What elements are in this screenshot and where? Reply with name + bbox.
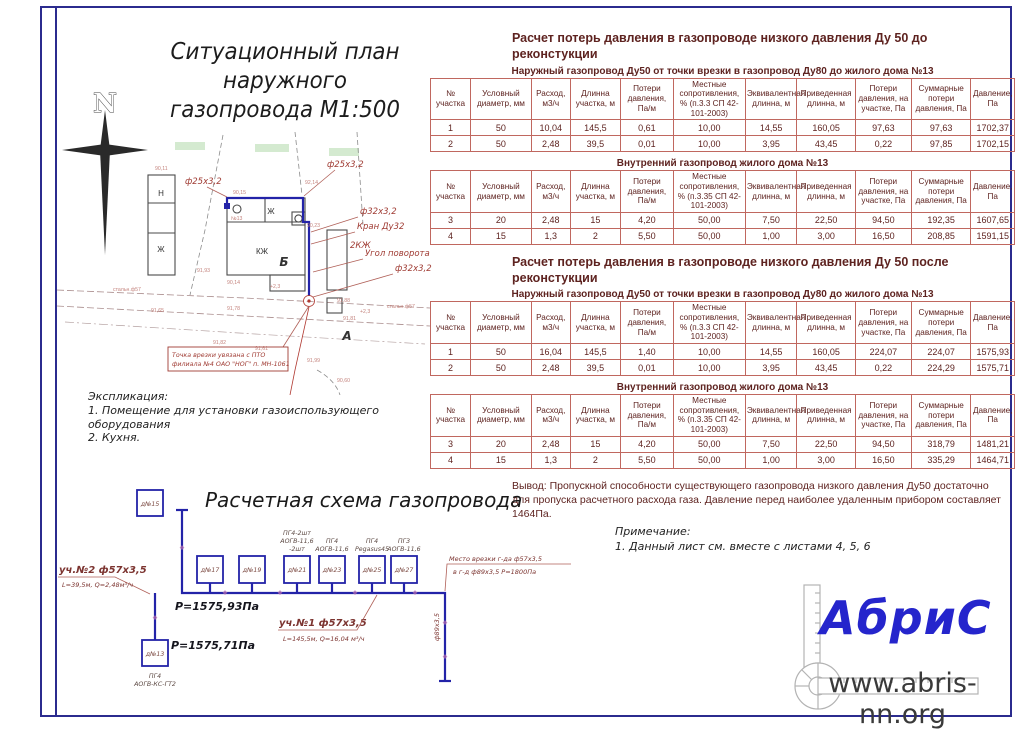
- house-box-21: д№21 ПГ4-2шт АОГВ-11,6 -2шт: [279, 530, 313, 593]
- tie-in-label: Место врезки г-да ф57х3,5 в г-д ф89х3,5 …: [445, 555, 571, 591]
- cell: 50,00: [673, 452, 745, 468]
- cell: 94,50: [855, 212, 911, 228]
- cell: 10,00: [673, 136, 745, 152]
- svg-text:-2шт: -2шт: [289, 546, 305, 553]
- elevation-mark: 91,82: [213, 340, 226, 346]
- cell: 2,48: [531, 436, 570, 452]
- cell: 1,40: [621, 344, 674, 360]
- cell: 1: [431, 344, 471, 360]
- col-header: Потери давления, на участке, Па: [855, 302, 911, 344]
- segment2-label: уч.№2 ф57х3,5 L=39,5м, Q=2,48м³/ч: [58, 564, 150, 594]
- table3-subtitle: Наружный газопровод Ду50 от точки врезки…: [430, 289, 1015, 300]
- col-header: Приведенная длинна, м: [797, 302, 855, 344]
- col-header: Расход, м3/ч: [531, 302, 570, 344]
- notes: Примечание: 1. Данный лист см. вместе с …: [615, 525, 871, 555]
- cell: 224,07: [855, 344, 911, 360]
- col-header: Давление, Па: [971, 302, 1015, 344]
- col-header: Условный диаметр, мм: [471, 171, 532, 213]
- svg-text:N: N: [93, 89, 117, 119]
- calc-block2-title: Расчет потерь давления в газопроводе низ…: [512, 254, 1005, 287]
- cell: 0,01: [621, 360, 674, 376]
- cell: 10,04: [531, 120, 570, 136]
- svg-text:ПГ4-2шт: ПГ4-2шт: [283, 530, 311, 537]
- elevation-mark: 91,99: [307, 358, 320, 364]
- explication-item: 2. Кухня.: [88, 431, 418, 445]
- cell: 4,20: [621, 212, 674, 228]
- cell: 50,00: [673, 436, 745, 452]
- svg-text:Точка врезки увязана с ПТО: Точка врезки увязана с ПТО: [172, 352, 265, 359]
- cell: 1,3: [531, 228, 570, 244]
- svg-text:ПГ4: ПГ4: [149, 673, 161, 680]
- cell: 145,5: [570, 344, 620, 360]
- col-header: Эквивалентная длинна, м: [745, 78, 797, 120]
- house-box-27: д№27 ПГ3 АОГВ-11,6: [386, 538, 420, 593]
- elevation-mark: 90,11: [155, 166, 168, 172]
- svg-text:д№25: д№25: [362, 567, 382, 574]
- calc-table: № участкаУсловный диаметр, ммРасход, м3/…: [430, 394, 1015, 469]
- cell: 2: [570, 228, 620, 244]
- cell: 50,00: [673, 212, 745, 228]
- svg-text:Ж: Ж: [157, 245, 165, 254]
- col-header: Условный диаметр, мм: [471, 395, 532, 437]
- notes-item: 1. Данный лист см. вместе с листами 4, 5…: [615, 540, 871, 555]
- cell: 318,79: [911, 436, 971, 452]
- riser-label: ф89х3,5: [433, 613, 441, 641]
- cell: 4: [431, 452, 471, 468]
- house-box-13: д№13 ПГ4 АОГВ-КС-ГТ2: [133, 640, 176, 688]
- calc-table: № участкаУсловный диаметр, ммРасход, м3/…: [430, 301, 1015, 376]
- table2-subtitle: Внутренний газопровод жилого дома №13: [430, 158, 1015, 169]
- col-header: Длинна участка, м: [570, 78, 620, 120]
- cell: 208,85: [911, 228, 971, 244]
- table-indoor-after: № участкаУсловный диаметр, ммРасход, м3/…: [430, 394, 1015, 469]
- scheme-title: Расчетная схема газопровода: [205, 488, 522, 512]
- svg-text:филиала №4 ОАО "НОГ" п. МН-106: филиала №4 ОАО "НОГ" п. МН-1061: [172, 361, 290, 368]
- elevation-mark: 90,15: [233, 190, 246, 196]
- svg-text:Ж: Ж: [267, 207, 275, 216]
- table-row: 15010,04145,50,6110,0014,55160,0597,6397…: [431, 120, 1015, 136]
- elevation-mark: 91,78: [227, 306, 240, 312]
- svg-text:Н: Н: [158, 189, 164, 198]
- col-header: Эквивалентная длинна, м: [745, 302, 797, 344]
- notes-title: Примечание:: [615, 525, 871, 540]
- road-axis-line: [65, 322, 425, 344]
- cell: 16,50: [855, 228, 911, 244]
- cell: 97,63: [855, 120, 911, 136]
- col-header: Суммарные потери давления, Па: [911, 395, 971, 437]
- svg-text:Pegasus45: Pegasus45: [355, 546, 389, 553]
- col-header: Потери давления, Па/м: [621, 171, 674, 213]
- table-row: 15016,04145,51,4010,0014,55160,05224,072…: [431, 344, 1015, 360]
- svg-text:АОГВ-11,6: АОГВ-11,6: [279, 538, 313, 545]
- calc-table: № участкаУсловный диаметр, ммРасход, м3/…: [430, 170, 1015, 245]
- elevation-mark: 91,93: [197, 268, 210, 274]
- faded-mark: [255, 144, 289, 152]
- svg-text:№13: №13: [231, 216, 242, 222]
- cell: 50,00: [673, 228, 745, 244]
- cell: 2,48: [531, 136, 570, 152]
- segment1-label: уч.№1 ф57х3,5 L=145,5м, Q=16,04 м³/ч: [278, 595, 377, 643]
- col-header: Суммарные потери давления, Па: [911, 78, 971, 120]
- svg-text:в г-д ф89х3,5 Р=1800Па: в г-д ф89х3,5 Р=1800Па: [453, 568, 536, 576]
- svg-text:L=145,5м, Q=16,04 м³/ч: L=145,5м, Q=16,04 м³/ч: [283, 635, 365, 643]
- building-left: Н Ж: [148, 175, 175, 275]
- cell: 20: [471, 212, 532, 228]
- col-header: Расход, м3/ч: [531, 78, 570, 120]
- cell: 14,55: [745, 344, 797, 360]
- cell: 7,50: [745, 436, 797, 452]
- cell: 97,63: [911, 120, 971, 136]
- cell: 16,04: [531, 344, 570, 360]
- cell: 3,95: [745, 360, 797, 376]
- cell: 4: [431, 228, 471, 244]
- table-row: 2502,4839,50,0110,003,9543,450,22224,291…: [431, 360, 1015, 376]
- cell: 3: [431, 212, 471, 228]
- logo-text: АбриС: [820, 591, 992, 645]
- calc-block1-title: Расчет потерь давления в газопроводе низ…: [512, 30, 1005, 63]
- explication: Экспликация: 1. Помещение для установки …: [88, 390, 418, 445]
- cell: 14,55: [745, 120, 797, 136]
- callout-kran: Кран Ду32: [357, 222, 404, 232]
- pressure-bottom: P=1575,71Па: [171, 639, 255, 652]
- cell: 1,00: [745, 452, 797, 468]
- elevation-mark: 91,61: [255, 346, 268, 352]
- cell: 50: [471, 136, 532, 152]
- col-header: Длинна участка, м: [570, 302, 620, 344]
- svg-text:д№21: д№21: [287, 567, 307, 574]
- cell: 1575,93: [971, 344, 1015, 360]
- svg-text:АОГВ-11,6: АОГВ-11,6: [386, 546, 420, 553]
- callout-f25-right: ф25х3,2: [327, 160, 364, 170]
- col-header: Местные сопротивления, % (п.3.35 СП 42-1…: [673, 395, 745, 437]
- col-header: Длинна участка, м: [570, 395, 620, 437]
- col-header: № участка: [431, 302, 471, 344]
- cell: 94,50: [855, 436, 911, 452]
- calc-section: Расчет потерь давления в газопроводе низ…: [430, 30, 1015, 521]
- col-header: Эквивалентная длинна, м: [745, 171, 797, 213]
- table1-subtitle: Наружный газопровод Ду50 от точки врезки…: [430, 66, 1015, 77]
- elevation-mark: 90,60: [337, 378, 350, 384]
- cell: 335,29: [911, 452, 971, 468]
- table-indoor-before: № участкаУсловный диаметр, ммРасход, м3/…: [430, 170, 1015, 245]
- pressure-top: P=1575,93Па: [175, 600, 259, 613]
- col-header: Потери давления, Па/м: [621, 395, 674, 437]
- svg-text:уч.№2 ф57х3,5: уч.№2 ф57х3,5: [59, 564, 147, 576]
- cell: 1607,65: [971, 212, 1015, 228]
- cell: 3: [431, 436, 471, 452]
- cell: 1464,71: [971, 452, 1015, 468]
- cell: 10,00: [673, 344, 745, 360]
- svg-text:д№13: д№13: [145, 651, 165, 658]
- steel-pipe-label-left: стальн.ф57: [113, 287, 141, 293]
- col-header: Расход, м3/ч: [531, 171, 570, 213]
- cell: 1481,21: [971, 436, 1015, 452]
- cell: 2: [431, 136, 471, 152]
- elevation-mark: 91,88: [337, 298, 350, 304]
- cell: 0,22: [855, 360, 911, 376]
- boundary-line: [295, 132, 302, 195]
- table-row: 2502,4839,50,0110,003,9543,450,2297,8517…: [431, 136, 1015, 152]
- col-header: № участка: [431, 78, 471, 120]
- road-line: [57, 306, 430, 326]
- col-header: Местные сопротивления, % (п.3.3 СП 42-10…: [673, 78, 745, 120]
- col-header: Потери давления, на участке, Па: [855, 78, 911, 120]
- cell: 3,00: [797, 228, 855, 244]
- cell: 5,50: [621, 228, 674, 244]
- house-box-25: д№25 ПГ4 Pegasus45: [355, 538, 389, 593]
- callout-ugol: Угол поворота: [365, 249, 430, 259]
- cell: 4,20: [621, 436, 674, 452]
- site-url[interactable]: www.abris-nn.org: [790, 668, 1015, 730]
- site-plan-drawing: N Н Ж №13 Ж КЖ Б: [55, 70, 435, 395]
- point-a-label: А: [341, 329, 351, 343]
- cell: 3,95: [745, 136, 797, 152]
- explication-item: 1. Помещение для установки газоиспользую…: [88, 404, 418, 432]
- cell: 43,45: [797, 360, 855, 376]
- cell: 43,45: [797, 136, 855, 152]
- cell: 10,00: [673, 120, 745, 136]
- cell: 1: [431, 120, 471, 136]
- cell: 50: [471, 344, 532, 360]
- cell: 192,35: [911, 212, 971, 228]
- cell: 20: [471, 436, 532, 452]
- col-header: Условный диаметр, мм: [471, 302, 532, 344]
- cell: 22,50: [797, 212, 855, 228]
- cell: 2: [570, 452, 620, 468]
- elevation-mark: 91,65: [151, 308, 164, 314]
- calc-scheme-drawing: Расчетная схема газопровода д№15 д№: [55, 483, 600, 701]
- table-outdoor-after: № участкаУсловный диаметр, ммРасход, м3/…: [430, 301, 1015, 376]
- table-row: 3202,48154,2050,007,5022,5094,50192,3516…: [431, 212, 1015, 228]
- cell: 15: [471, 228, 532, 244]
- col-header: Суммарные потери давления, Па: [911, 302, 971, 344]
- cell: 1591,15: [971, 228, 1015, 244]
- cell: 10,00: [673, 360, 745, 376]
- cell: 97,85: [911, 136, 971, 152]
- col-header: Потери давления, Па/м: [621, 302, 674, 344]
- callout-f25-left: ф25х3,2: [185, 177, 222, 187]
- cell: 1702,37: [971, 120, 1015, 136]
- svg-text:д№19: д№19: [242, 567, 262, 574]
- table-row: 3202,48154,2050,007,5022,5094,50318,7914…: [431, 436, 1015, 452]
- col-header: Потери давления, Па/м: [621, 78, 674, 120]
- svg-text:уч.№1 ф57х3,5: уч.№1 ф57х3,5: [279, 617, 367, 629]
- house-box-23: д№23 ПГ4 АОГВ-11,6: [314, 538, 348, 593]
- svg-text:АОГВ-11,6: АОГВ-11,6: [314, 546, 348, 553]
- col-header: Местные сопротивления, % (п.3.3 СП 42-10…: [673, 302, 745, 344]
- cell: 39,5: [570, 136, 620, 152]
- cell: 1575,71: [971, 360, 1015, 376]
- north-compass-icon: N: [62, 89, 148, 255]
- cell: 50: [471, 120, 532, 136]
- house-box-17: д№17: [197, 556, 223, 593]
- cell: 15: [570, 212, 620, 228]
- cell: 7,50: [745, 212, 797, 228]
- col-header: Потери давления, на участке, Па: [855, 395, 911, 437]
- col-header: Давление, Па: [971, 171, 1015, 213]
- svg-text:Место врезки г-да ф57х3,5: Место врезки г-да ф57х3,5: [449, 555, 542, 563]
- cell: 1702,15: [971, 136, 1015, 152]
- explication-title: Экспликация:: [88, 390, 418, 404]
- house-box-19: д№19: [239, 556, 265, 593]
- cell: 50: [471, 360, 532, 376]
- svg-text:д№15: д№15: [140, 501, 160, 508]
- svg-text:L=39,5м, Q=2,48м³/ч: L=39,5м, Q=2,48м³/ч: [62, 581, 133, 589]
- col-header: Эквивалентная длинна, м: [745, 395, 797, 437]
- cell: 3,00: [797, 452, 855, 468]
- cell: 5,50: [621, 452, 674, 468]
- col-header: Условный диаметр, мм: [471, 78, 532, 120]
- col-header: Приведенная длинна, м: [797, 78, 855, 120]
- cell: 39,5: [570, 360, 620, 376]
- col-header: Приведенная длинна, м: [797, 395, 855, 437]
- svg-text:д№27: д№27: [394, 567, 414, 574]
- cell: 224,07: [911, 344, 971, 360]
- table-row: 4151,325,5050,001,003,0016,50208,851591,…: [431, 228, 1015, 244]
- cell: 0,22: [855, 136, 911, 152]
- elevation-mark: 92,14: [305, 180, 318, 186]
- cell: 2,48: [531, 360, 570, 376]
- cell: 1,3: [531, 452, 570, 468]
- house-box-15: д№15: [137, 490, 163, 516]
- col-header: Давление, Па: [971, 78, 1015, 120]
- elevation-mark: 90,14: [227, 280, 240, 286]
- cell: 224,29: [911, 360, 971, 376]
- calc-table: № участкаУсловный диаметр, ммРасход, м3/…: [430, 78, 1015, 153]
- table-row: 4151,325,5050,001,003,0016,50335,291464,…: [431, 452, 1015, 468]
- svg-text:д№17: д№17: [200, 567, 220, 574]
- building-center-house13: №13 Ж КЖ: [227, 198, 305, 291]
- col-header: Потери давления, на участке, Па: [855, 171, 911, 213]
- cell: 160,05: [797, 344, 855, 360]
- cell: 15: [570, 436, 620, 452]
- table-outdoor-before: № участкаУсловный диаметр, ммРасход, м3/…: [430, 78, 1015, 153]
- col-header: Приведенная длинна, м: [797, 171, 855, 213]
- cell: 1,00: [745, 228, 797, 244]
- col-header: № участка: [431, 395, 471, 437]
- col-header: № участка: [431, 171, 471, 213]
- steel-pipe-label-right: стальн.ф57: [387, 304, 415, 310]
- cell: 0,01: [621, 136, 674, 152]
- col-header: Давление, Па: [971, 395, 1015, 437]
- col-header: Длинна участка, м: [570, 171, 620, 213]
- cell: 160,05: [797, 120, 855, 136]
- svg-text:АОГВ-КС-ГТ2: АОГВ-КС-ГТ2: [133, 681, 176, 688]
- cell: 145,5: [570, 120, 620, 136]
- svg-text:ПГ4: ПГ4: [326, 538, 338, 545]
- elevation-mark: 91,81: [343, 316, 356, 322]
- point-b-label: Б: [279, 255, 288, 269]
- col-header: Расход, м3/ч: [531, 395, 570, 437]
- drawing-sheet: Ситуационный план наружного газопровода …: [0, 0, 1024, 724]
- cell: 0,61: [621, 120, 674, 136]
- cell: 2: [431, 360, 471, 376]
- callout-f32-top: ф32х3,2: [360, 207, 397, 217]
- tie-in-point: [290, 296, 315, 396]
- faded-mark: [329, 148, 359, 156]
- svg-text:КЖ: КЖ: [256, 247, 269, 256]
- svg-text:ПГ4: ПГ4: [366, 538, 378, 545]
- cell: 16,50: [855, 452, 911, 468]
- faded-mark: [175, 142, 205, 150]
- svg-text:д№23: д№23: [322, 567, 342, 574]
- table4-subtitle: Внутренний газопровод жилого дома №13: [430, 382, 1015, 393]
- elevation-mark: +2,3: [270, 284, 280, 290]
- elevation-mark: 90,23: [307, 223, 320, 229]
- cell: 22,50: [797, 436, 855, 452]
- elevation-mark: +2,3: [360, 309, 370, 315]
- col-header: Местные сопротивления, % (п.3.35 СП 42-1…: [673, 171, 745, 213]
- col-header: Суммарные потери давления, Па: [911, 171, 971, 213]
- cell: 2,48: [531, 212, 570, 228]
- callout-f32-bottom: ф32х3,2: [395, 264, 432, 274]
- svg-text:ПГ3: ПГ3: [398, 538, 410, 545]
- cell: 15: [471, 452, 532, 468]
